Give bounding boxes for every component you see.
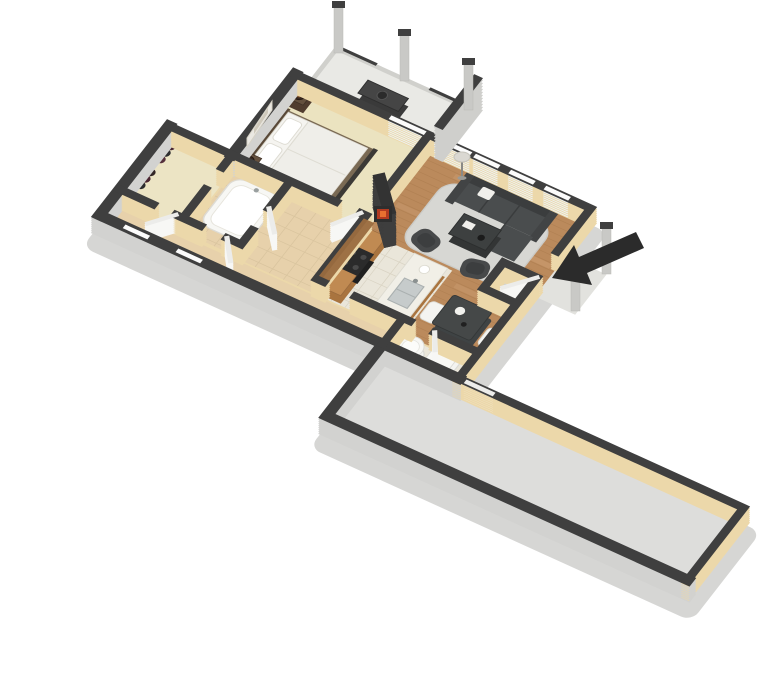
fireplace [374, 206, 392, 222]
post-cap [398, 29, 411, 36]
post-cap [332, 1, 345, 8]
floorplan-canvas [0, 0, 782, 694]
apartment-3d-floorplan [0, 0, 782, 694]
post [334, 7, 343, 53]
post [400, 35, 409, 81]
post-cap [600, 222, 613, 229]
flame [380, 211, 386, 217]
post [464, 64, 473, 110]
post-cap [462, 58, 475, 65]
